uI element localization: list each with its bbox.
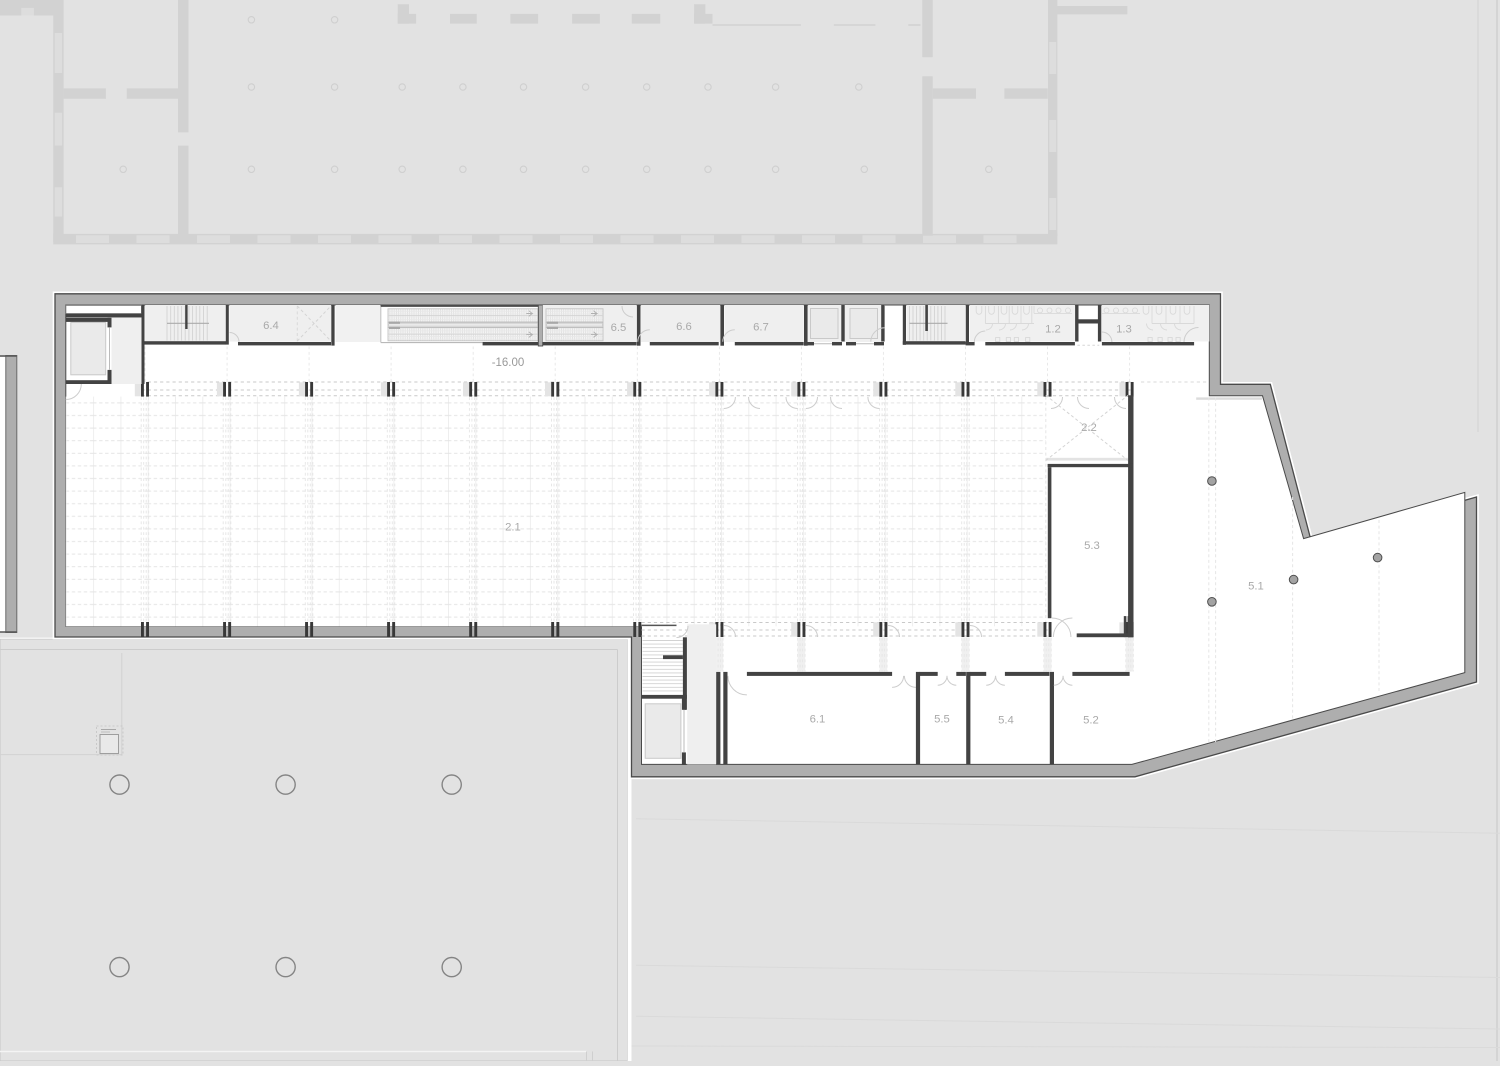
svg-text:2.1: 2.1	[505, 522, 521, 534]
svg-text:-16.00: -16.00	[492, 357, 525, 369]
svg-text:6.5: 6.5	[611, 322, 627, 334]
svg-text:6.6: 6.6	[676, 321, 692, 333]
svg-text:1.2: 1.2	[1045, 324, 1061, 336]
svg-text:1.3: 1.3	[1116, 324, 1132, 336]
svg-text:5.3: 5.3	[1084, 540, 1100, 552]
svg-text:5.1: 5.1	[1248, 581, 1264, 593]
svg-text:5.5: 5.5	[934, 714, 950, 726]
svg-text:2.2: 2.2	[1081, 422, 1097, 434]
svg-text:6.4: 6.4	[263, 320, 279, 332]
svg-text:6.1: 6.1	[810, 714, 826, 726]
svg-text:6.7: 6.7	[753, 322, 769, 334]
svg-text:5.2: 5.2	[1083, 715, 1099, 727]
svg-text:5.4: 5.4	[998, 715, 1014, 727]
